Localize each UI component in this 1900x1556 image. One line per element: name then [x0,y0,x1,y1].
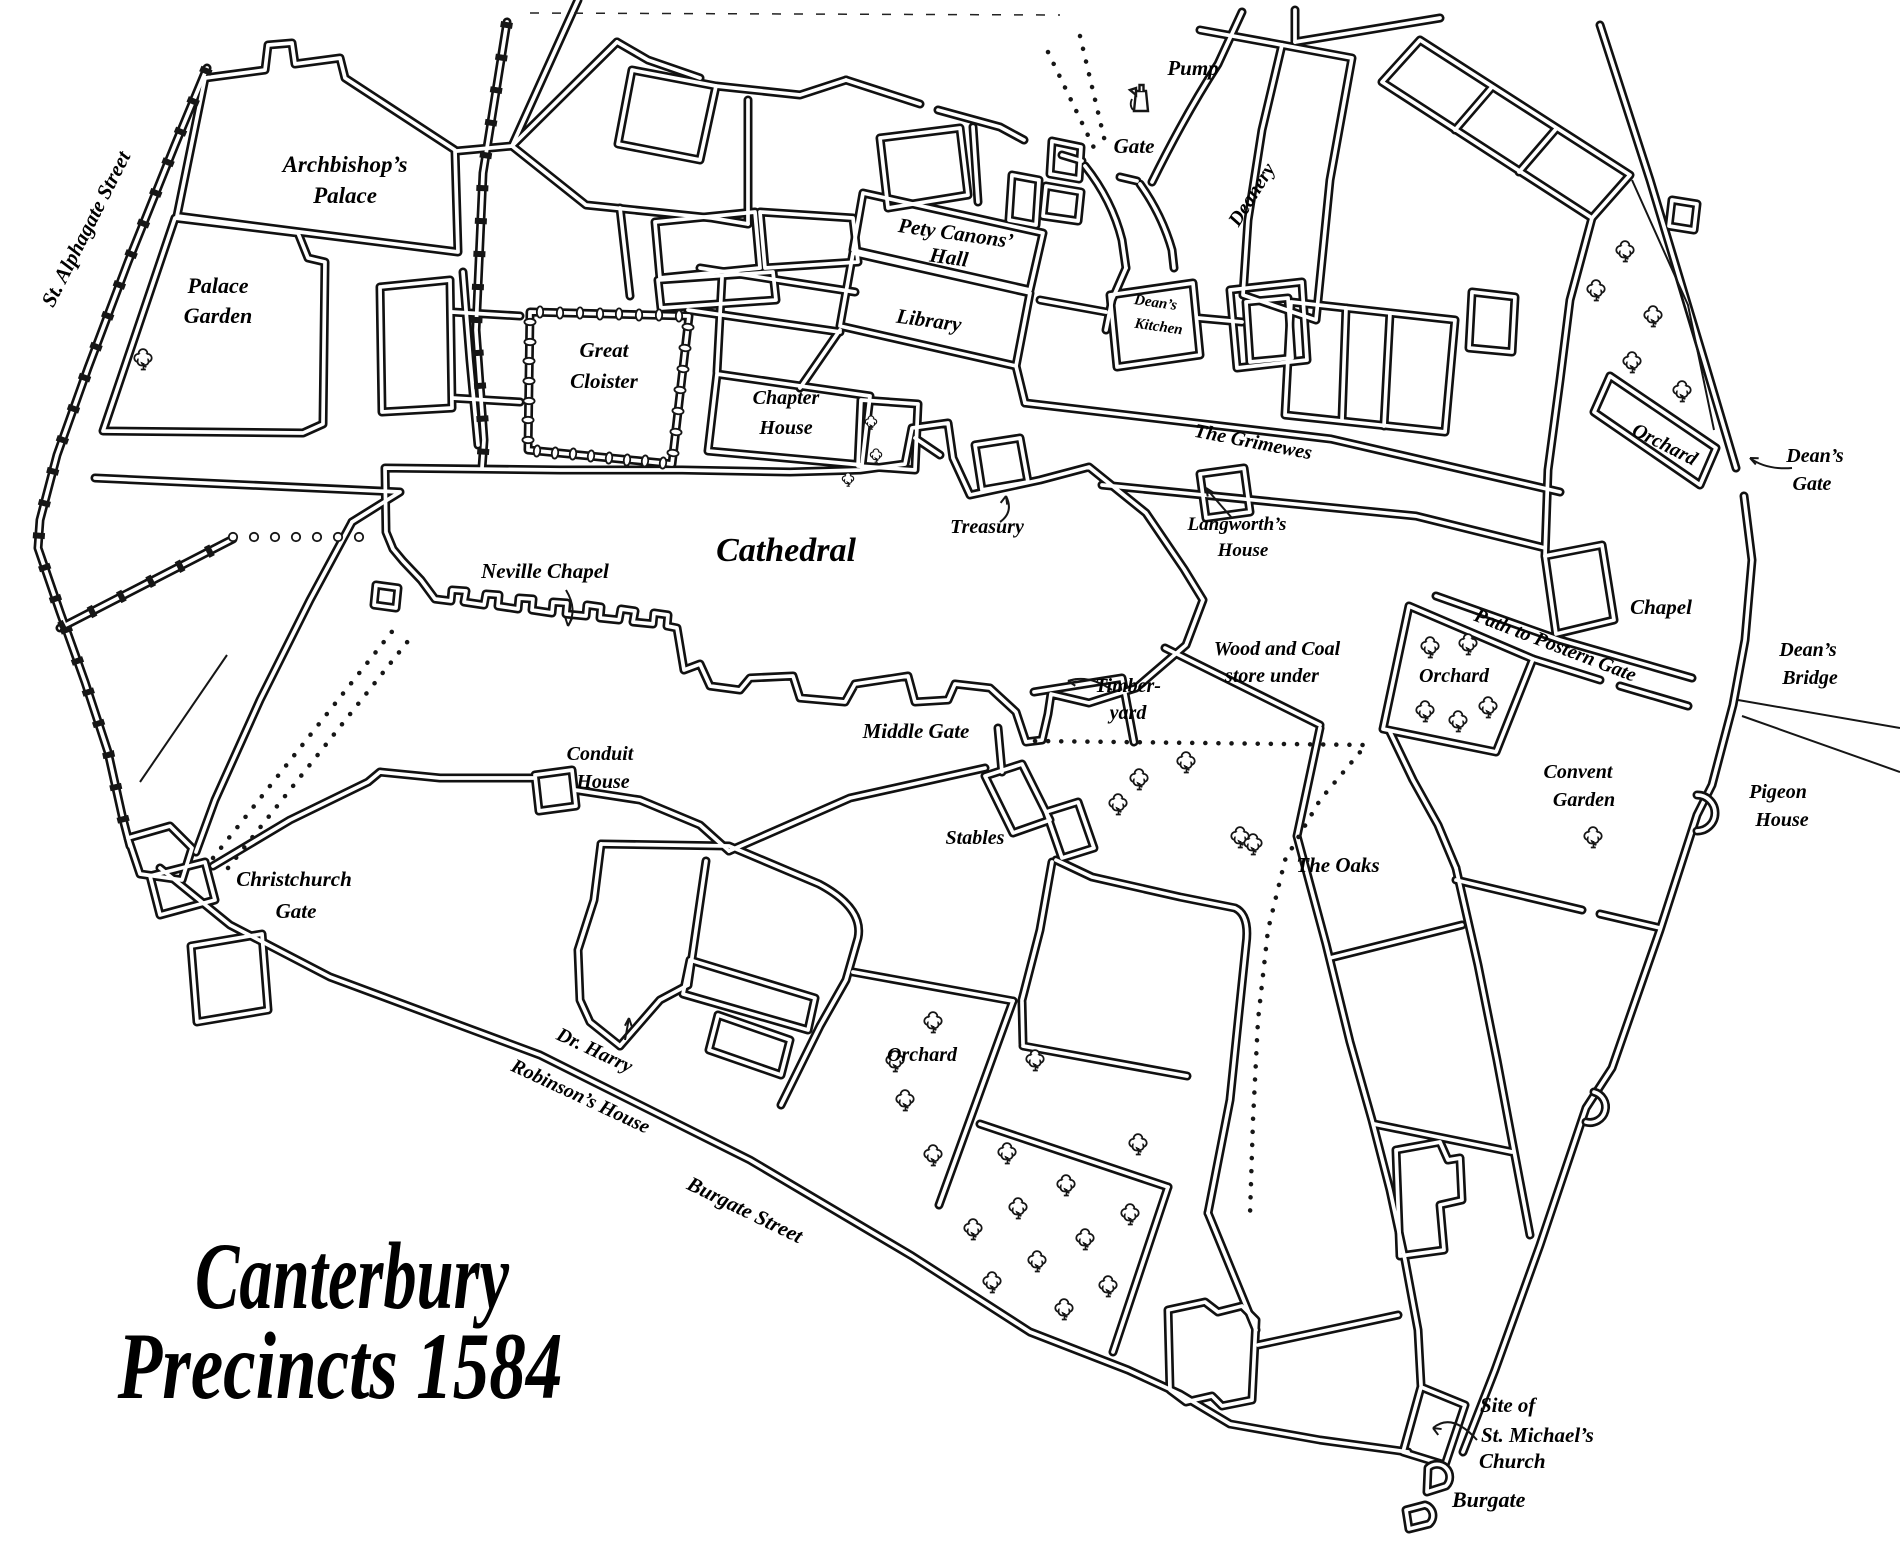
svg-text:Archbishop’s: Archbishop’s [281,152,408,177]
svg-text:Neville Chapel: Neville Chapel [480,559,609,583]
svg-text:Orchard: Orchard [1419,665,1490,687]
svg-text:Gate: Gate [1793,473,1832,495]
svg-text:Conduit: Conduit [567,743,635,765]
svg-text:Palace: Palace [186,273,248,298]
svg-text:yard: yard [1108,702,1148,724]
svg-text:Dean’s: Dean’s [1785,445,1844,467]
svg-text:Christchurch: Christchurch [236,867,352,891]
svg-text:Langworth’s: Langworth’s [1187,514,1287,535]
svg-text:House: House [1217,540,1269,561]
svg-text:Chapel: Chapel [1630,595,1692,619]
svg-text:Great: Great [580,338,630,362]
svg-text:House: House [1754,809,1808,831]
svg-text:Stables: Stables [946,827,1005,849]
svg-text:Church: Church [1479,1449,1546,1473]
svg-text:Cloister: Cloister [570,369,639,393]
svg-text:Orchard: Orchard [887,1044,958,1066]
svg-text:Garden: Garden [1553,789,1615,811]
svg-text:Site of: Site of [1480,1393,1537,1417]
svg-text:Palace: Palace [312,183,377,208]
svg-text:Cathedral: Cathedral [716,532,856,569]
svg-text:St. Michael’s: St. Michael’s [1481,1423,1594,1447]
svg-text:House: House [758,417,812,439]
svg-text:House: House [575,771,629,793]
svg-text:Gate: Gate [1114,134,1155,158]
svg-text:Bridge: Bridge [1781,667,1838,689]
svg-text:Convent: Convent [1544,761,1614,783]
svg-text:Middle Gate: Middle Gate [862,719,970,743]
svg-text:Dean’s: Dean’s [1778,639,1837,661]
svg-text:Timber-: Timber- [1095,675,1161,697]
svg-text:store under: store under [1224,665,1319,687]
svg-text:Garden: Garden [184,303,252,328]
svg-text:Pigeon: Pigeon [1748,781,1807,803]
svg-text:Treasury: Treasury [950,516,1024,538]
svg-text:The Oaks: The Oaks [1296,853,1379,877]
svg-text:Burgate: Burgate [1451,1487,1526,1512]
svg-text:Pump: Pump [1166,56,1218,80]
svg-text:Gate: Gate [276,899,317,923]
svg-text:Chapter: Chapter [753,387,820,409]
svg-text:Wood and Coal: Wood and Coal [1214,638,1341,660]
svg-text:Precincts 1584: Precincts 1584 [117,1314,563,1419]
